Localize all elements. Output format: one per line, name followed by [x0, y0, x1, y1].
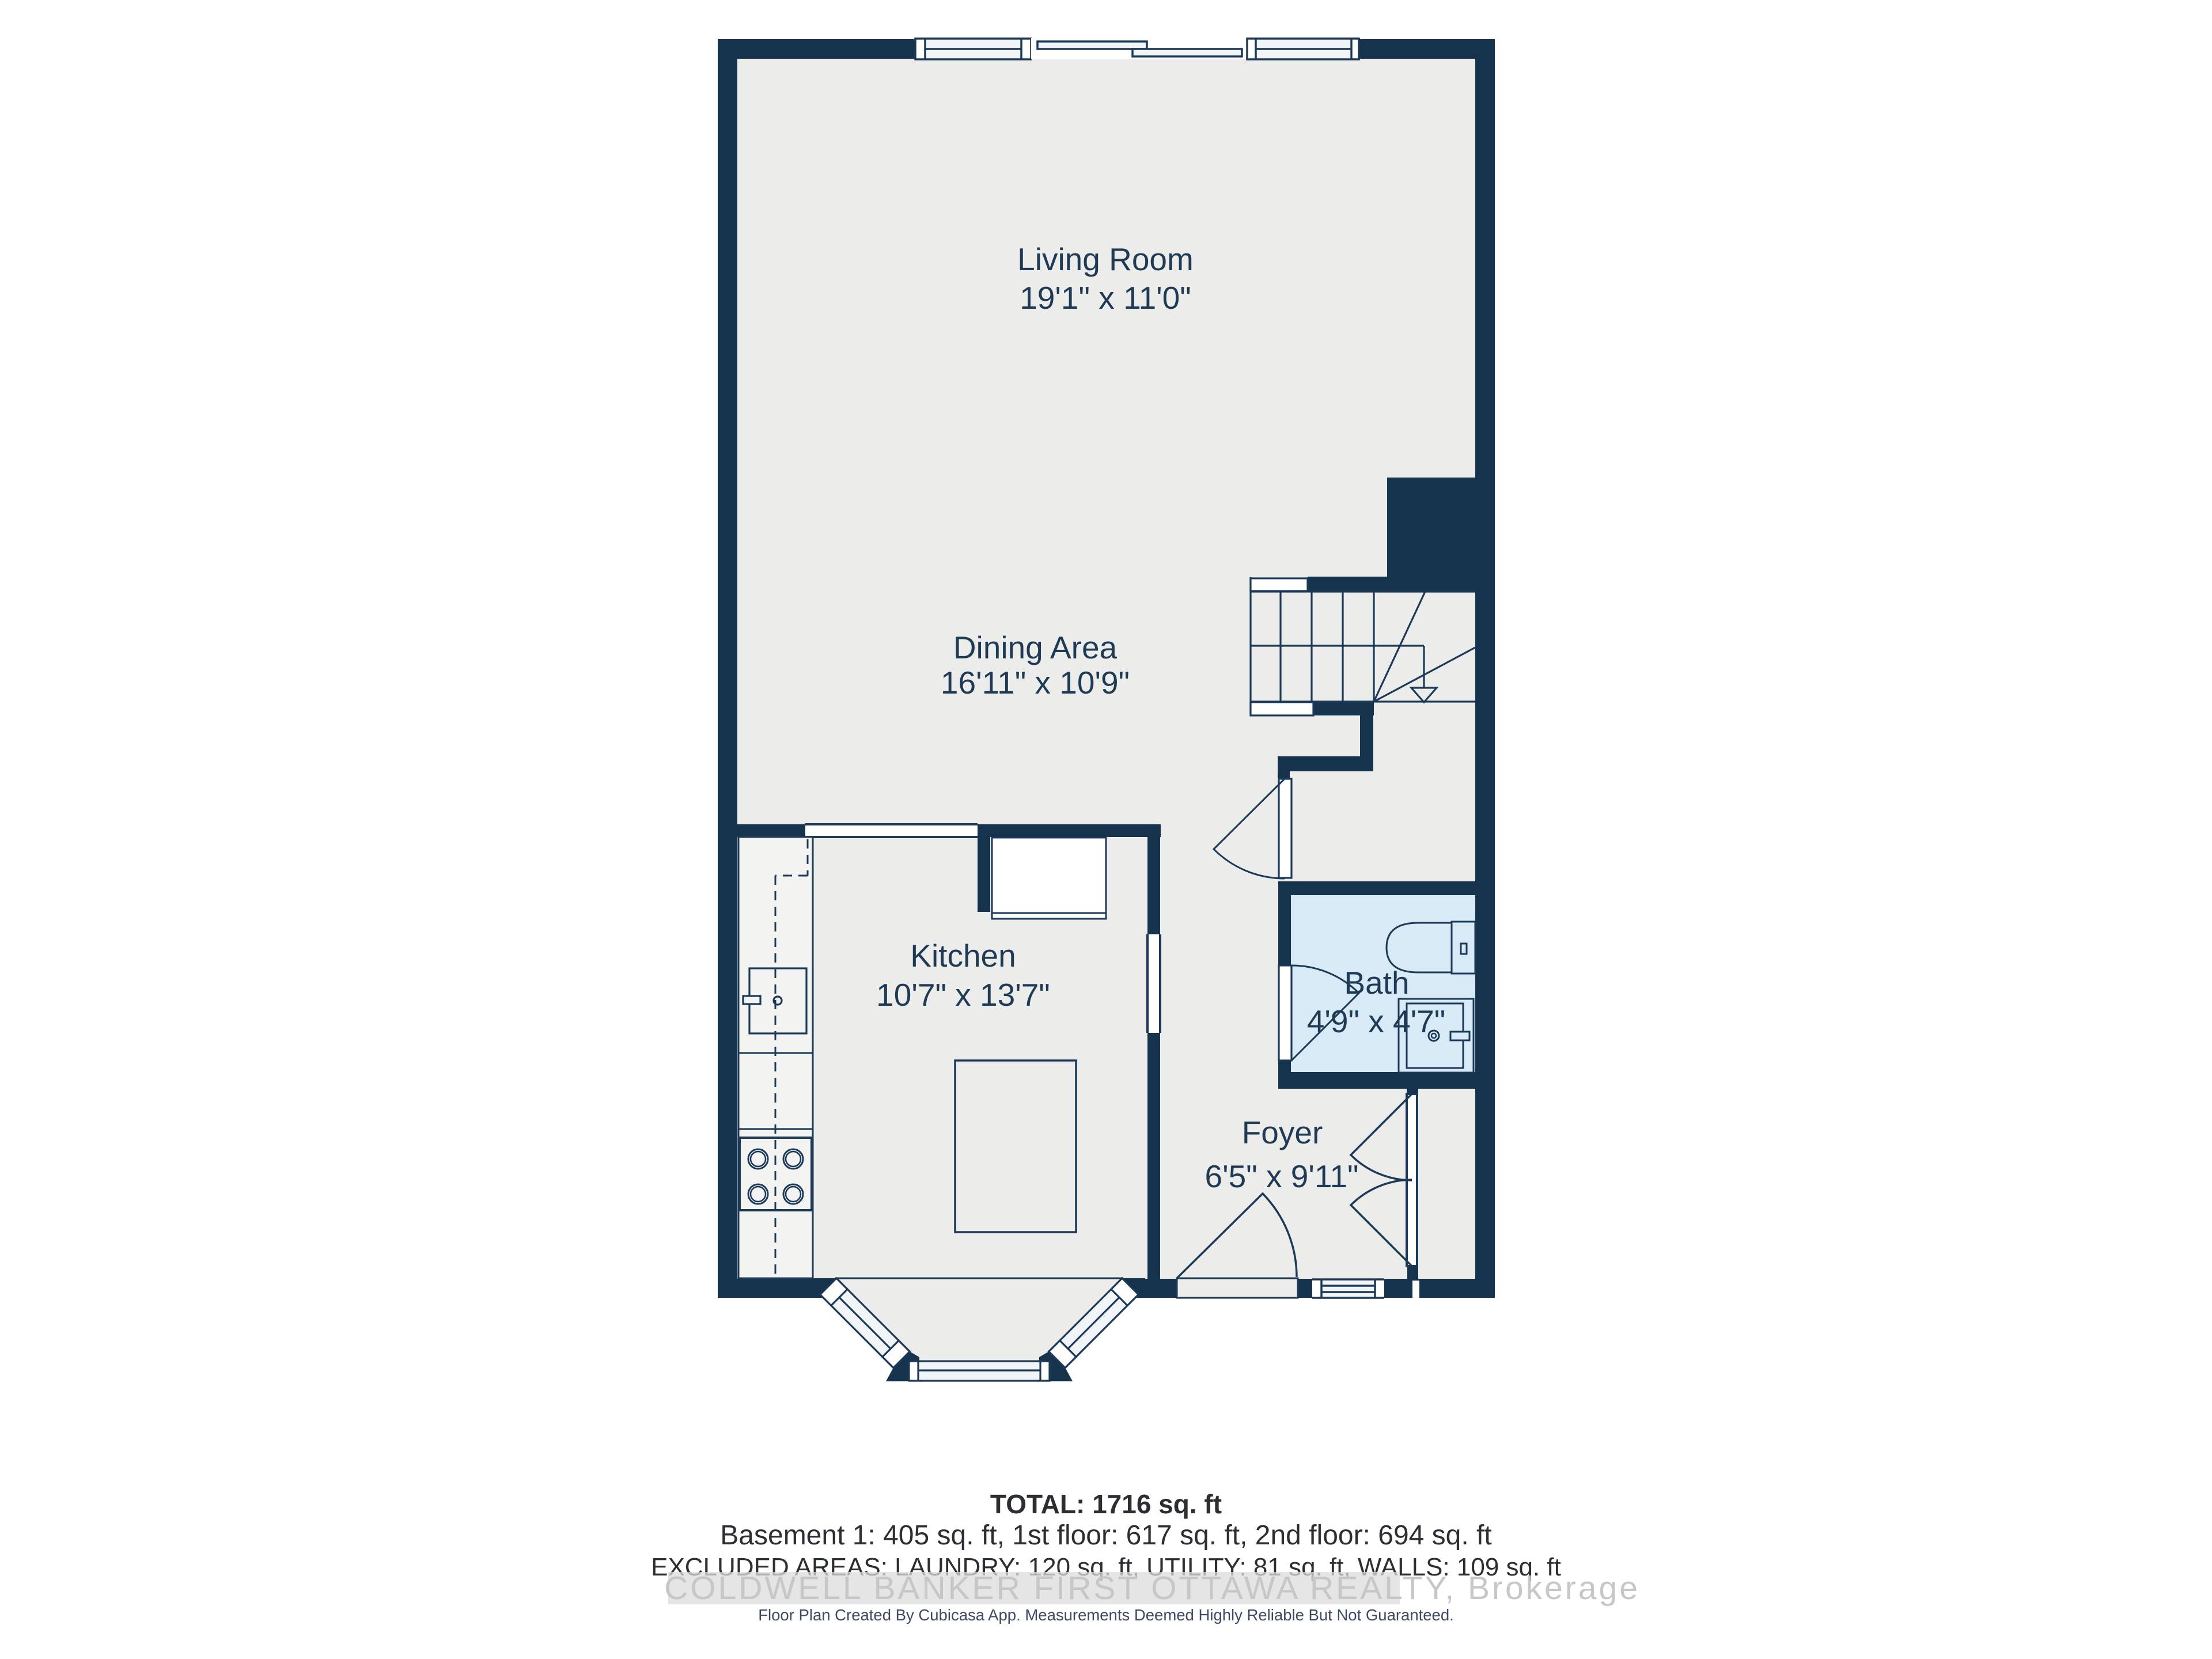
svg-text:Kitchen: Kitchen [910, 938, 1016, 974]
svg-text:Basement 1: 405 sq. ft, 1st fl: Basement 1: 405 sq. ft, 1st floor: 617 s… [720, 1520, 1491, 1551]
svg-text:Dining Area: Dining Area [953, 630, 1118, 665]
svg-text:Foyer: Foyer [1242, 1115, 1323, 1150]
svg-text:Bath: Bath [1344, 965, 1409, 1001]
svg-text:TOTAL: 1716 sq. ft: TOTAL: 1716 sq. ft [990, 1489, 1222, 1519]
svg-text:6'5" x 9'11": 6'5" x 9'11" [1205, 1158, 1359, 1194]
svg-text:19'1" x 11'0": 19'1" x 11'0" [1020, 280, 1191, 316]
svg-text:10'7" x 13'7": 10'7" x 13'7" [876, 977, 1050, 1013]
svg-text:4'9" x 4'7": 4'9" x 4'7" [1307, 1003, 1445, 1039]
svg-text:Living Room: Living Room [1017, 241, 1194, 277]
svg-text:Floor Plan Created By Cubicasa: Floor Plan Created By Cubicasa App. Meas… [758, 1606, 1454, 1624]
svg-text:16'11" x 10'9": 16'11" x 10'9" [941, 665, 1130, 700]
